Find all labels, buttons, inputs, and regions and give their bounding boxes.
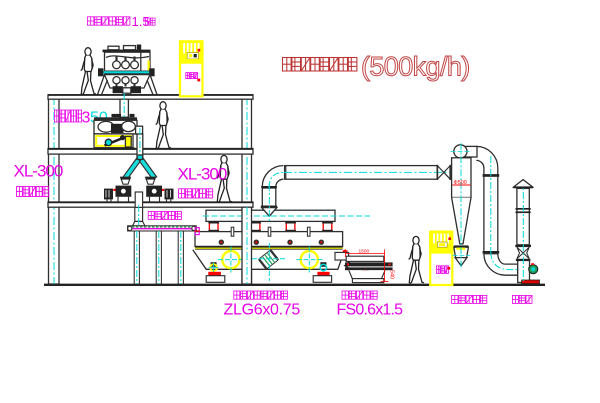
svg-text:540: 540 xyxy=(389,270,395,279)
svg-text:(500kg/h): (500kg/h) xyxy=(361,52,470,82)
svg-text:XL-300: XL-300 xyxy=(14,162,63,181)
svg-text:1500: 1500 xyxy=(359,248,370,254)
svg-text:XL-300: XL-300 xyxy=(178,165,227,184)
svg-text:FS0.6x1.5: FS0.6x1.5 xyxy=(337,302,404,319)
svg-text:Φ500: Φ500 xyxy=(454,180,467,186)
svg-text:ZLG6x0.75: ZLG6x0.75 xyxy=(224,302,301,319)
